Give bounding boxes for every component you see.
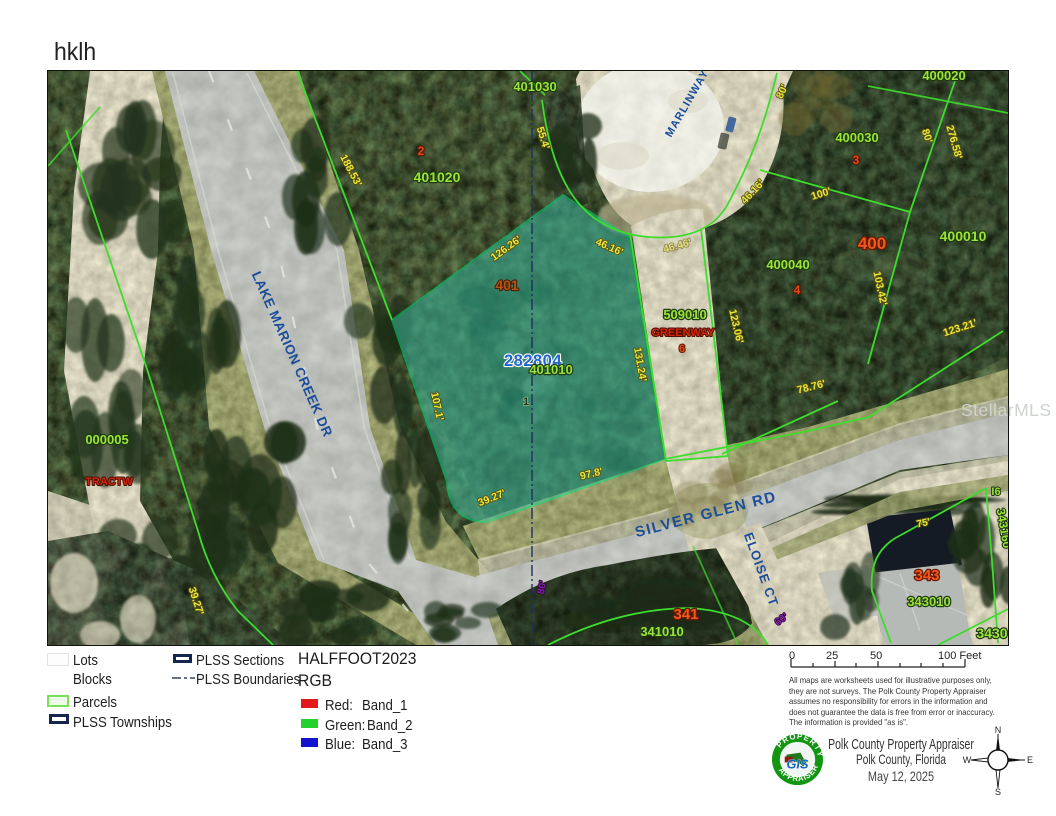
svg-text:50: 50 bbox=[870, 650, 882, 662]
svg-text:TRACTW: TRACTW bbox=[85, 476, 133, 488]
svg-text:401010: 401010 bbox=[529, 362, 572, 377]
svg-text:509010: 509010 bbox=[663, 307, 706, 322]
svg-text:N: N bbox=[995, 726, 1002, 735]
svg-text:401: 401 bbox=[495, 277, 519, 293]
svg-text:3: 3 bbox=[853, 153, 860, 167]
svg-text:000005: 000005 bbox=[85, 432, 128, 447]
svg-text:401030: 401030 bbox=[513, 79, 556, 94]
svg-text:W: W bbox=[963, 755, 972, 765]
svg-text:2: 2 bbox=[418, 144, 425, 158]
svg-text:1: 1 bbox=[523, 396, 529, 408]
svg-text:400040: 400040 bbox=[766, 257, 809, 272]
svg-text:3430: 3430 bbox=[976, 625, 1007, 641]
svg-text:6: 6 bbox=[679, 343, 685, 355]
svg-text:400010: 400010 bbox=[940, 228, 987, 244]
svg-text:341010: 341010 bbox=[640, 624, 683, 639]
svg-text:400020: 400020 bbox=[922, 71, 965, 83]
svg-text:341: 341 bbox=[673, 606, 698, 623]
svg-text:0: 0 bbox=[789, 650, 795, 662]
svg-text:E: E bbox=[1027, 755, 1033, 765]
svg-text:343: 343 bbox=[914, 567, 939, 584]
svg-text:401020: 401020 bbox=[414, 169, 461, 185]
svg-text:25: 25 bbox=[826, 650, 838, 662]
svg-text:343010: 343010 bbox=[907, 594, 950, 609]
svg-text:400: 400 bbox=[858, 234, 886, 253]
svg-text:S: S bbox=[995, 787, 1001, 796]
svg-text:400030: 400030 bbox=[835, 130, 878, 145]
svg-text:100 Feet: 100 Feet bbox=[938, 650, 981, 662]
svg-text:I6: I6 bbox=[991, 486, 1000, 498]
svg-text:GREENWAY: GREENWAY bbox=[651, 327, 715, 339]
svg-text:4: 4 bbox=[794, 283, 801, 297]
